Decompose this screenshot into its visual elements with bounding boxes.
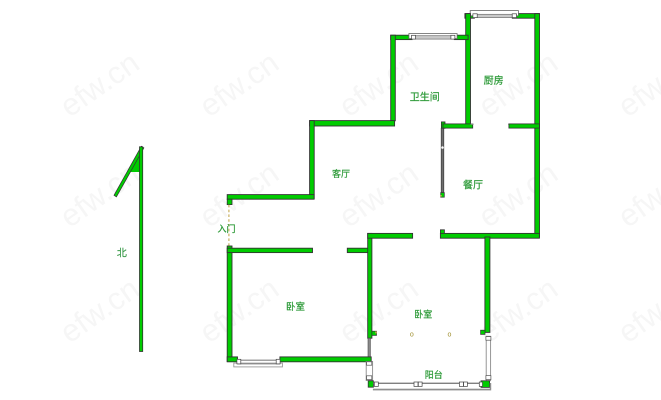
svg-text:o: o xyxy=(447,332,451,339)
svg-text:餐厅: 餐厅 xyxy=(463,179,483,192)
svg-text:卧室: 卧室 xyxy=(414,309,432,320)
svg-text:卧室: 卧室 xyxy=(286,301,305,313)
svg-text:阳台: 阳台 xyxy=(425,369,443,380)
svg-text:入门: 入门 xyxy=(217,223,235,234)
svg-text:客厅: 客厅 xyxy=(332,168,350,179)
svg-text:北: 北 xyxy=(117,248,127,260)
svg-text:厨房: 厨房 xyxy=(484,74,504,87)
svg-text:o: o xyxy=(410,332,414,339)
svg-text:卫生间: 卫生间 xyxy=(410,91,440,104)
